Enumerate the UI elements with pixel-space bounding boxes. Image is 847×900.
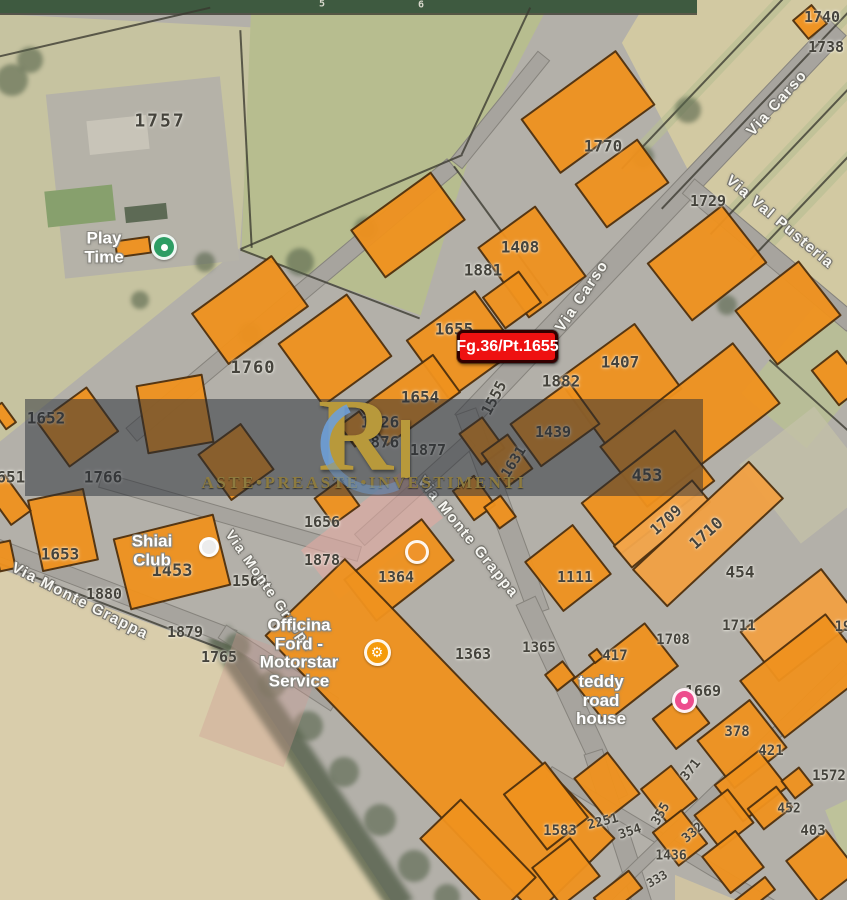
poi-teddy-road-house: teddy road house	[576, 673, 626, 729]
parcel-number-1656: 1656	[304, 513, 340, 531]
tree-canopy	[398, 850, 430, 882]
parcel-number-19: 19	[835, 619, 847, 635]
tree-canopy	[131, 291, 149, 309]
parcel-number-1879: 1879	[167, 623, 203, 641]
parcel-number-1436: 1436	[655, 849, 686, 864]
tree-canopy	[195, 252, 215, 272]
lodging-icon[interactable]	[672, 688, 697, 713]
parcel-number-452: 452	[777, 802, 800, 817]
poi-play-time: Play Time	[84, 229, 123, 266]
parcel-number-1881: 1881	[464, 261, 503, 280]
parcel-number-1583: 1583	[543, 823, 577, 839]
tree-canopy	[17, 47, 43, 73]
parcel-number-1111: 1111	[557, 568, 593, 586]
faded-poi-icon[interactable]	[405, 540, 429, 564]
building-polygon	[780, 766, 814, 800]
parcel-number-1363: 1363	[455, 645, 491, 663]
tree-canopy	[329, 757, 359, 787]
parcel-number-5: 5	[319, 0, 325, 10]
parcel-number-1365: 1365	[522, 640, 556, 656]
parcel-number-333: 333	[644, 868, 670, 891]
parcel-number-1738: 1738	[808, 38, 844, 56]
tree-canopy	[675, 97, 701, 123]
parcel-number-1653: 1653	[41, 545, 80, 564]
lodging-icon-dot	[681, 697, 688, 704]
parcel-number-417: 417	[602, 648, 627, 664]
parcel-number-1765: 1765	[201, 648, 237, 666]
poi-officina-ford: Officina Ford - Motorstar Service	[260, 617, 338, 692]
play-time-icon[interactable]	[151, 234, 177, 260]
parcel-number-1364: 1364	[378, 568, 414, 586]
parcel-number-1878: 1878	[304, 551, 340, 569]
parcel-number-1760: 1760	[231, 358, 276, 378]
poi-shiai-club: Shiai Club	[132, 532, 173, 569]
selected-parcel-callout: Fg.36/Pt.1655	[457, 330, 558, 363]
tree-canopy	[286, 248, 314, 276]
hedgerow-strip	[0, 0, 697, 13]
parcel-number-1651: 1651	[0, 468, 25, 487]
parcel-number-1770: 1770	[584, 137, 623, 156]
parcel-number-1408: 1408	[501, 238, 540, 257]
parcel-number-1572: 1572	[812, 768, 846, 784]
officina-wrench-icon[interactable]: ⚙	[364, 639, 391, 666]
parcel-number-1708: 1708	[656, 632, 690, 648]
parcel-number-454: 454	[726, 563, 755, 582]
parcel-number-1407: 1407	[601, 353, 640, 372]
play-time-icon-dot	[161, 244, 168, 251]
tree-canopy	[364, 804, 396, 836]
parcel-number-1740: 1740	[804, 8, 840, 26]
parcel-number-1711: 1711	[722, 618, 756, 634]
parcel-number-403: 403	[800, 823, 825, 839]
shiai-club-icon[interactable]	[199, 537, 219, 557]
parcel-number-1882: 1882	[542, 372, 581, 391]
field-patch	[44, 185, 115, 228]
parcel-number-6: 6	[418, 0, 424, 11]
parcel-boundary-line	[0, 13, 697, 15]
parcel-number-421: 421	[758, 743, 783, 759]
map-canvas[interactable]: 1757177017401738172914081881165514071882…	[0, 0, 847, 900]
parcel-number-1729: 1729	[690, 192, 726, 210]
parcel-number-1757: 1757	[134, 111, 185, 132]
parcel-number-378: 378	[724, 724, 749, 740]
tree-canopy	[434, 884, 460, 900]
